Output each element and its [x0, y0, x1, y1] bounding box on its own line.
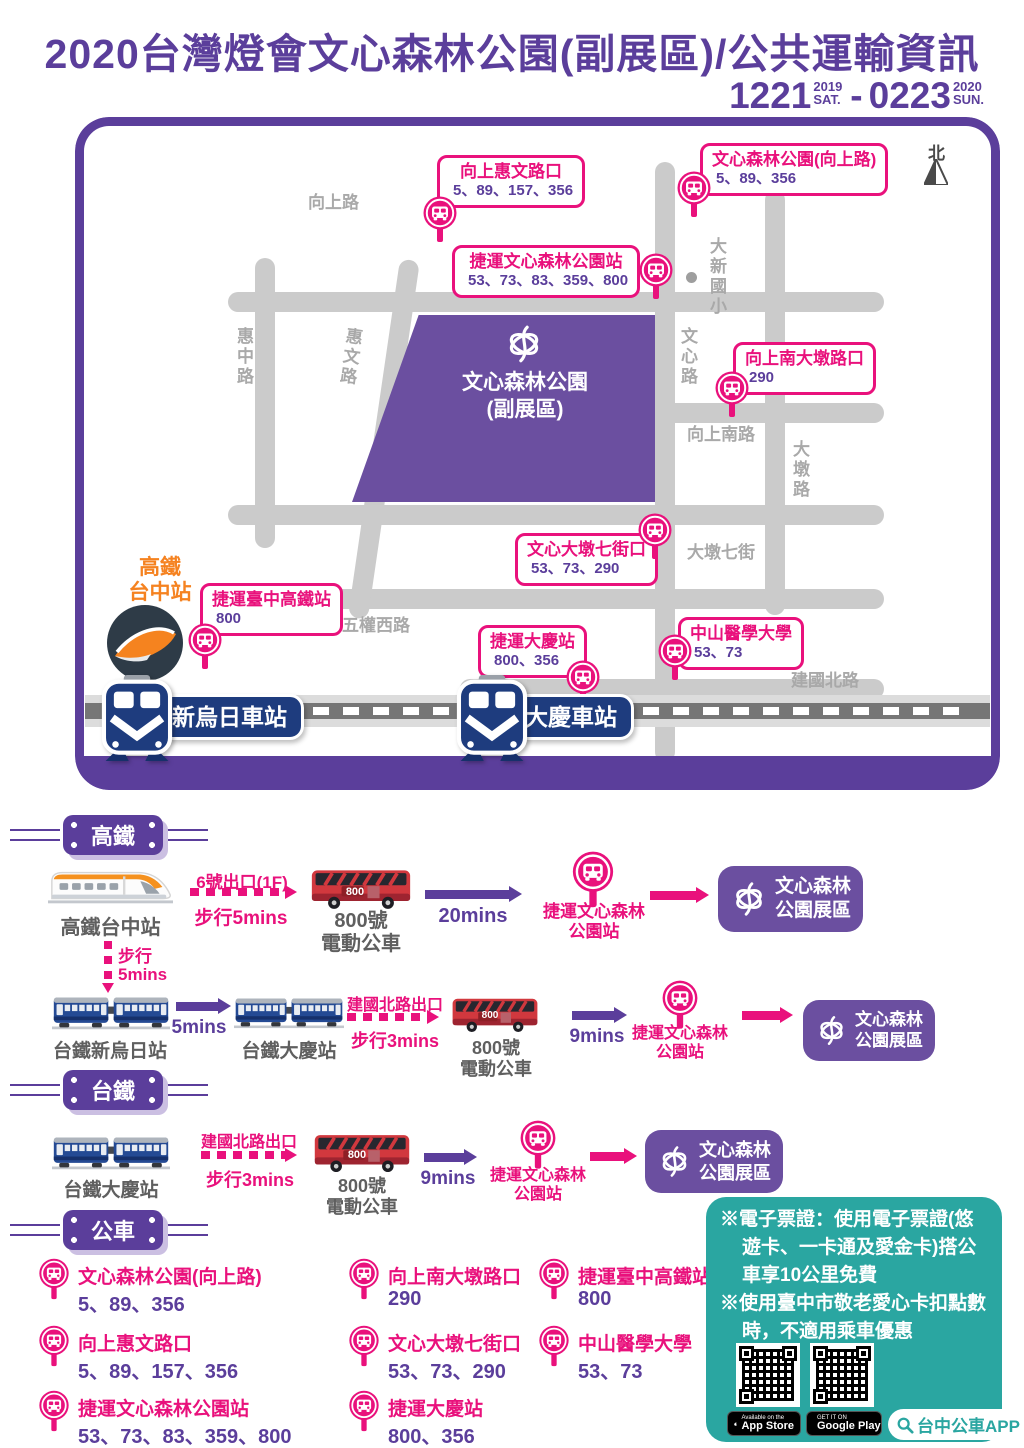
bus-stop-icon [348, 1258, 380, 1303]
date-end: 0223 [869, 78, 951, 114]
qr-finder [813, 1346, 828, 1361]
flow2-origin: 台鐵新烏日站 [40, 1036, 180, 1063]
ticket-line [166, 829, 208, 841]
lantern-logo-icon [730, 880, 768, 918]
bus-list-item-name: 向上南大墩路口 [388, 1262, 521, 1289]
bus-list-item-name: 捷運文心森林公園站 [78, 1394, 249, 1421]
bus-list-item-routes: 800、356 [388, 1420, 475, 1448]
map-stop-mrt-wenxin-park: 捷運文心森林公園站 53、73、83、359、800 [452, 245, 640, 298]
bus-list-item-name: 中山醫學大學 [578, 1329, 692, 1356]
notice-line-1: ※電子票證：使用電子票證(悠遊卡、一卡通及愛金卡)搭公車享10公里免費 [720, 1197, 992, 1290]
hsr-logo-icon [105, 603, 185, 683]
bus-list-item-name: 捷運大慶站 [388, 1394, 483, 1421]
road-label-jianguobei: 建國北路 [791, 666, 859, 691]
road-dadun [765, 190, 785, 615]
bus-list-item-routes: 53、73 [578, 1355, 643, 1384]
hsr-train-icon [48, 863, 173, 909]
date-end-detail: 2020 SUN. [953, 80, 984, 106]
road-huizhong [255, 258, 275, 548]
bus-stop-icon [638, 253, 674, 303]
flow2-mid: 台鐵大慶站 [230, 1036, 348, 1063]
tra-train-icon [234, 990, 344, 1034]
ticket-line [166, 1224, 208, 1236]
road-label-wenxin: 文心路 [675, 327, 700, 387]
road-dadunqijie [228, 505, 884, 525]
bus-list-item-name: 文心森林公園(向上路) [78, 1262, 262, 1289]
to-dest-arrow [742, 1011, 780, 1020]
map-stop-chungshan-univ: 中山醫學大學 53、73 [678, 617, 804, 670]
map-stop-xiangshang-huiwen: 向上惠文路口 5、89、157、356 [437, 155, 585, 208]
to-dest-arrow [590, 1152, 624, 1161]
ticket-line [10, 1224, 60, 1236]
road-label-huizhong: 惠中路 [231, 327, 256, 387]
bus-stop-icon [657, 634, 693, 684]
school-label: 大新國小 [704, 237, 729, 317]
school-dot [686, 272, 697, 283]
qr-code-appstore [736, 1343, 800, 1407]
qr-finder [782, 1346, 797, 1361]
destination-badge: 文心森林 公園展區 [645, 1130, 783, 1193]
event-dates: 1221 2019 SAT. - 0223 2020 SUN. [729, 78, 986, 114]
destination-badge: 文心森林 公園展區 [718, 866, 863, 932]
qr-finder [856, 1346, 871, 1361]
ride-arrow [176, 1002, 218, 1011]
transit-map: 文心森林公園 (副展區) 向上路 惠中路 惠文路 文心路 大新國小 向上南路 大… [75, 117, 1000, 790]
bus-stop-icon [422, 196, 458, 246]
road-label-xiangshangnan: 向上南路 [687, 420, 755, 445]
ticket-line [166, 1084, 208, 1096]
qr-finder [739, 1389, 754, 1404]
map-stop-xiangshangnan-dadun: 向上南大墩路口 290 [733, 342, 876, 395]
lantern-logo-icon [815, 1014, 848, 1047]
bus-list-item-name: 文心大墩七街口 [388, 1329, 521, 1356]
taichung-bus-app-pill[interactable]: 台中公車APP [888, 1409, 1024, 1440]
ticket-line [10, 829, 60, 841]
train-front-icon [99, 675, 175, 761]
bus-list-item-routes: 800 [578, 1288, 611, 1311]
flow1-walk: 步行5mins [186, 903, 296, 930]
bus-stop-icon [38, 1325, 70, 1370]
section-badge-bus: 公車 [63, 1210, 163, 1250]
walk-dashed-arrow-down [104, 941, 112, 983]
section-badge-tra: 台鐵 [63, 1070, 163, 1110]
qr-finder [739, 1346, 754, 1361]
flow2-ride2: 9mins [568, 1026, 626, 1048]
destination-badge: 文心森林 公園展區 [803, 1000, 935, 1061]
tra-train-icon [52, 990, 170, 1034]
walk-dashed-arrow [201, 1151, 285, 1159]
google-play-badge[interactable]: GET IT ON Google Play [806, 1411, 882, 1436]
bus-list-item-name: 向上惠文路口 [78, 1329, 192, 1356]
train-front-icon [454, 675, 530, 761]
bus-list-item-name: 捷運臺中高鐵站 [578, 1262, 711, 1289]
flow2-stop: 捷運文心森林 公園站 [628, 1024, 732, 1062]
bus-stop-icon [187, 623, 223, 673]
flow1-ride: 20mins [428, 905, 518, 928]
north-arrow-icon [924, 159, 948, 185]
tra-train-icon [52, 1130, 170, 1174]
road-label-wuquanxi: 五權西路 [342, 611, 410, 636]
lantern-logo-icon [657, 1144, 692, 1179]
flow3-ride: 9mins [418, 1168, 478, 1190]
flow3-bus-label: 800號 電動公車 [312, 1176, 412, 1218]
flow3-origin: 台鐵大慶站 [48, 1175, 174, 1202]
apple-icon [734, 1417, 737, 1431]
bus-list-item-routes: 53、73、83、359、800 [78, 1420, 291, 1448]
flow2-bus-label: 800號 電動公車 [450, 1038, 542, 1080]
road-label-dadunqijie: 大墩七街 [687, 538, 755, 563]
bus-stop-icon [676, 171, 712, 221]
date-start-detail: 2019 SAT. [813, 80, 842, 106]
transfer-walk: 步行 5mins [118, 948, 167, 984]
qr-finder [813, 1389, 828, 1404]
bus-list-item-routes: 53、73、290 [388, 1355, 506, 1384]
flow3-walk: 步行3mins [200, 1166, 300, 1192]
bus-stop-icon [38, 1390, 70, 1435]
road-label-dadun: 大墩路 [787, 440, 812, 500]
bus-stop-icon [538, 1258, 570, 1303]
lantern-logo-icon [503, 323, 545, 365]
bus-stop-icon [714, 371, 750, 421]
bus-number: 800 [342, 886, 368, 898]
flow1-origin: 高鐵台中站 [38, 911, 183, 940]
search-icon [896, 1416, 914, 1434]
flow1-stop: 捷運文心森林 公園站 [535, 902, 653, 943]
section-badge-hsr: 高鐵 [63, 815, 163, 855]
walk-dashed-arrow [190, 888, 285, 896]
bus-stop-icon [348, 1325, 380, 1370]
bus-stop-icon [38, 1258, 70, 1303]
poster: 2020台灣燈會文心森林公園(副展區)/公共運輸資訊 1221 2019 SAT… [0, 0, 1024, 1448]
date-start: 1221 [729, 78, 811, 114]
road-label-xiangshang: 向上路 [308, 188, 359, 213]
bus-list-item-routes: 5、89、356 [78, 1288, 185, 1317]
page-title: 2020台灣燈會文心森林公園(副展區)/公共運輸資訊 [0, 20, 1024, 80]
to-dest-arrow [650, 891, 696, 900]
ticket-line [10, 1084, 60, 1096]
flow2-walk: 步行3mins [345, 1027, 445, 1053]
bus-list-item-routes: 5、89、157、356 [78, 1355, 238, 1384]
map-stop-park-xiangshang: 文心森林公園(向上路) 5、89、356 [700, 143, 888, 196]
qr-code-googleplay [810, 1343, 874, 1407]
walk-dashed-arrow [347, 1013, 427, 1021]
flow2-ride1: 5mins [168, 1017, 230, 1039]
notice-line-2: ※使用臺中市敬老愛心卡扣點數時，不適用乘車優惠 [720, 1290, 992, 1346]
ride-arrow [572, 1011, 614, 1020]
bus-stop-icon [348, 1390, 380, 1435]
app-store-badge[interactable]: Available on the App Store [727, 1411, 801, 1436]
bus-number: 800 [478, 1010, 502, 1021]
flow3-stop: 捷運文心森林 公園站 [486, 1166, 590, 1204]
park-label: 文心森林公園 (副展區) [425, 369, 625, 423]
flow1-bus-label: 800號 電動公車 [308, 910, 414, 956]
ride-arrow [425, 890, 509, 899]
bus-stop-icon [637, 513, 673, 563]
road-label-huiwen: 惠文路 [333, 326, 366, 389]
ride-arrow [424, 1153, 464, 1162]
bus-number: 800 [344, 1149, 370, 1161]
station-xinwuri: 新烏日車站 [155, 694, 304, 740]
bus-stop-icon [538, 1325, 570, 1370]
bus-list-item-routes: 290 [388, 1288, 421, 1311]
date-separator: - [850, 78, 862, 114]
